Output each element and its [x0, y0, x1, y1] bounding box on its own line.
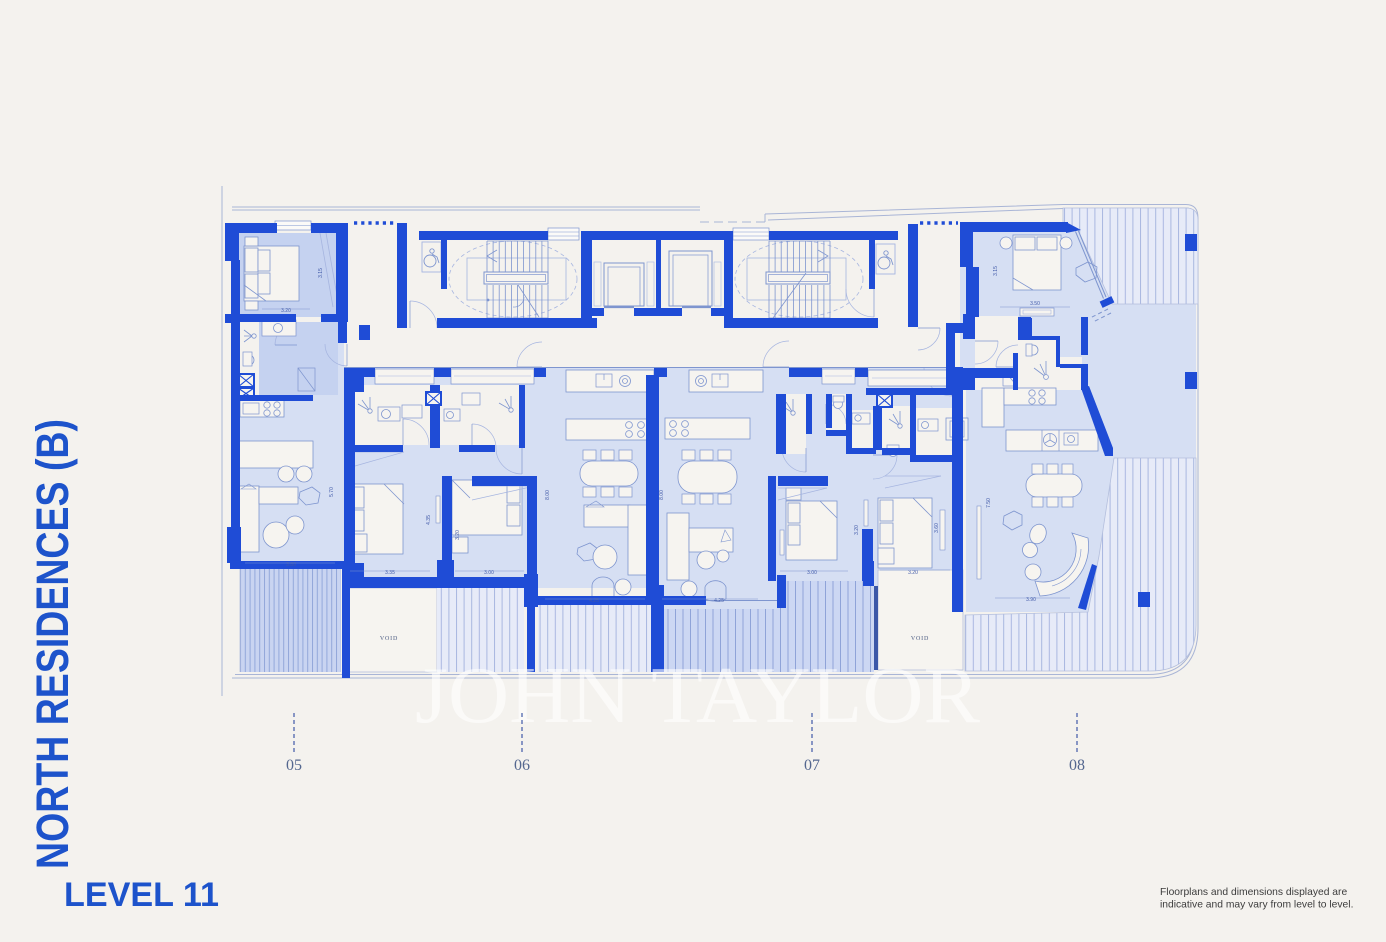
svg-text:3.20: 3.20: [854, 525, 860, 535]
svg-text:VOID: VOID: [380, 636, 398, 642]
svg-text:07: 07: [804, 757, 820, 774]
svg-text:indicative and may vary from l: indicative and may vary from level to le…: [1160, 900, 1353, 911]
svg-text:5.70: 5.70: [329, 487, 335, 497]
svg-text:Floorplans and dimensions disp: Floorplans and dimensions displayed are: [1160, 887, 1347, 898]
svg-text:NORTH RESIDENCES (B): NORTH RESIDENCES (B): [27, 419, 78, 869]
svg-text:06: 06: [514, 757, 530, 774]
svg-text:08: 08: [1069, 757, 1085, 774]
svg-text:7.50: 7.50: [986, 498, 992, 508]
svg-text:8.00: 8.00: [659, 490, 665, 500]
svg-text:4.35: 4.35: [426, 515, 432, 525]
svg-text:3.50: 3.50: [1030, 301, 1040, 307]
svg-text:VOID: VOID: [911, 636, 929, 642]
svg-text:3.15: 3.15: [993, 266, 999, 276]
svg-text:3.60: 3.60: [934, 523, 940, 533]
svg-text:8.00: 8.00: [545, 490, 551, 500]
svg-text:3.20: 3.20: [908, 570, 918, 576]
svg-text:05: 05: [286, 757, 302, 774]
svg-text:JOHN TAYLOR: JOHN TAYLOR: [415, 652, 981, 740]
svg-text:3.15: 3.15: [318, 268, 324, 278]
svg-text:3.20: 3.20: [455, 530, 461, 540]
svg-text:LEVEL 11: LEVEL 11: [64, 876, 219, 914]
